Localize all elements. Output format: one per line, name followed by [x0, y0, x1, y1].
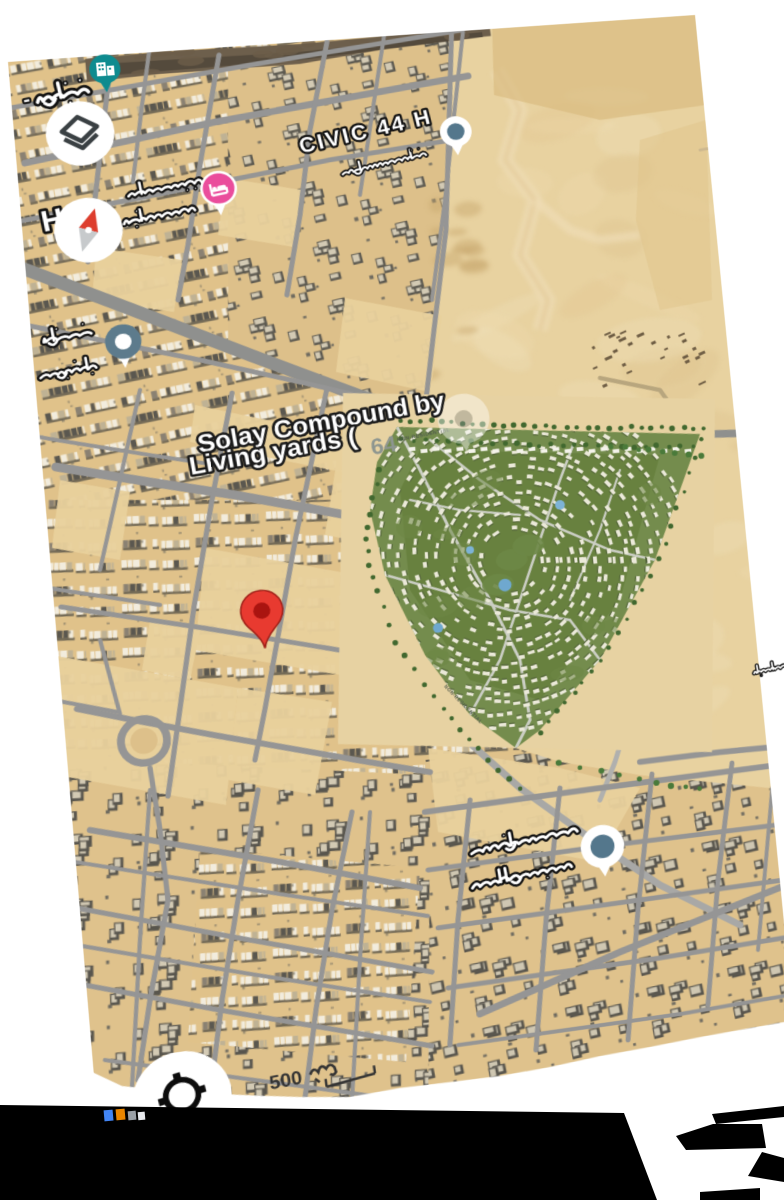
- svg-text:500: 500: [268, 1068, 304, 1095]
- svg-text:-: -: [20, 89, 32, 111]
